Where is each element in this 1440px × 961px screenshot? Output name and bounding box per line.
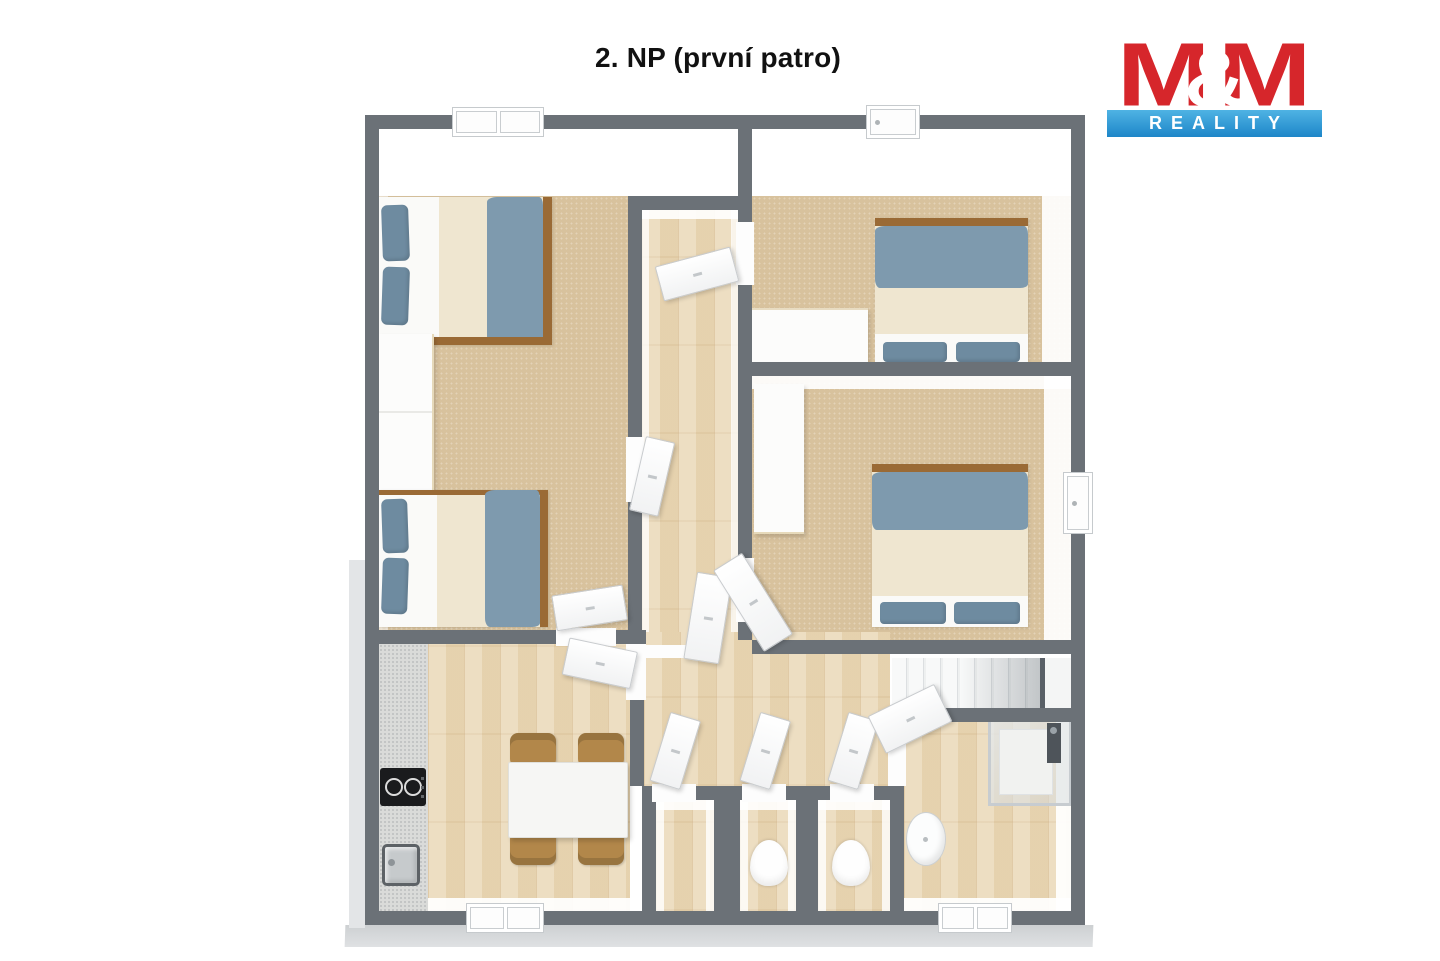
window-handle — [1072, 501, 1077, 506]
wall-segment — [642, 786, 652, 800]
toilet — [750, 840, 788, 886]
burner — [404, 778, 422, 796]
door-opening — [736, 222, 754, 285]
wall-segment — [786, 786, 830, 800]
window — [1063, 472, 1093, 534]
bed-blanket — [487, 197, 543, 345]
window-pane — [870, 109, 916, 135]
wall-segment — [616, 630, 646, 644]
wc-storage-floor — [656, 800, 714, 911]
shower-head — [1050, 727, 1057, 734]
wardrobe-left — [377, 334, 434, 490]
bed-frame-edge — [543, 197, 552, 345]
cooktop — [380, 768, 426, 806]
bed-frame-edge — [875, 218, 1028, 226]
pillow — [381, 267, 410, 326]
pillow — [381, 205, 410, 262]
wall-segment — [738, 129, 752, 222]
bed-frame-edge — [872, 464, 1028, 472]
wall-segment — [628, 196, 752, 210]
base-slab-left — [349, 560, 365, 928]
wall-segment — [642, 800, 656, 911]
faucet — [388, 859, 395, 866]
window-pane — [977, 907, 1009, 929]
shower-enclosure — [988, 718, 1072, 806]
washbasin — [906, 812, 946, 866]
window-pane — [470, 907, 504, 929]
wall-segment — [874, 786, 890, 800]
wall-face-top-band — [379, 129, 1071, 196]
wall-segment — [628, 208, 642, 437]
wardrobe-mid-right — [754, 384, 804, 534]
wall-segment — [796, 800, 818, 911]
bed-blanket — [875, 226, 1028, 288]
window-pane — [507, 907, 541, 929]
wall-segment — [379, 630, 556, 644]
double-bed-bottom-left — [379, 490, 548, 627]
wall-segment — [890, 786, 904, 911]
window-handle — [875, 120, 880, 125]
desk-top-right — [752, 308, 868, 364]
window — [866, 105, 920, 139]
window-pane — [456, 111, 497, 133]
double-bed-top-right — [875, 218, 1028, 362]
window-pane — [500, 111, 541, 133]
bed-blanket — [485, 490, 540, 627]
window — [452, 107, 544, 137]
stair-landing — [1045, 658, 1071, 708]
window — [938, 903, 1012, 933]
floor-plan — [0, 0, 1440, 961]
shower-tray — [999, 729, 1053, 795]
pillow — [954, 602, 1020, 624]
bed-blanket — [872, 472, 1028, 530]
pillow — [381, 499, 409, 554]
floorplan-page: { "title": "2. NP (první patro)", "logo"… — [0, 0, 1440, 961]
wall-segment — [738, 285, 752, 362]
wall-segment — [752, 640, 1085, 654]
pillow — [381, 558, 409, 615]
logo-ampersand: & — [1184, 44, 1245, 110]
burner — [385, 778, 403, 796]
wall-segment — [365, 115, 379, 925]
window-pane — [1067, 476, 1089, 530]
window-pane — [942, 907, 974, 929]
wall-segment — [630, 700, 644, 786]
wall-face-right-tr — [1042, 196, 1071, 362]
kitchen-sink — [382, 844, 420, 886]
basin-drain — [923, 837, 928, 842]
pillow — [883, 342, 947, 362]
wall-segment — [714, 800, 740, 911]
wall-segment — [628, 502, 642, 644]
pillow — [956, 342, 1020, 362]
wall-segment — [696, 786, 742, 800]
wall-segment — [738, 362, 1071, 376]
double-bed-top-left — [379, 197, 552, 345]
cooktop-knobs — [421, 776, 424, 798]
window — [466, 903, 544, 933]
double-bed-mid-right — [872, 464, 1028, 627]
staircase-shadow — [960, 658, 1040, 708]
wall-segment — [738, 376, 752, 558]
dining-table — [508, 762, 628, 838]
pillow — [880, 602, 946, 624]
bed-frame-edge — [540, 490, 548, 627]
toilet — [832, 840, 870, 886]
